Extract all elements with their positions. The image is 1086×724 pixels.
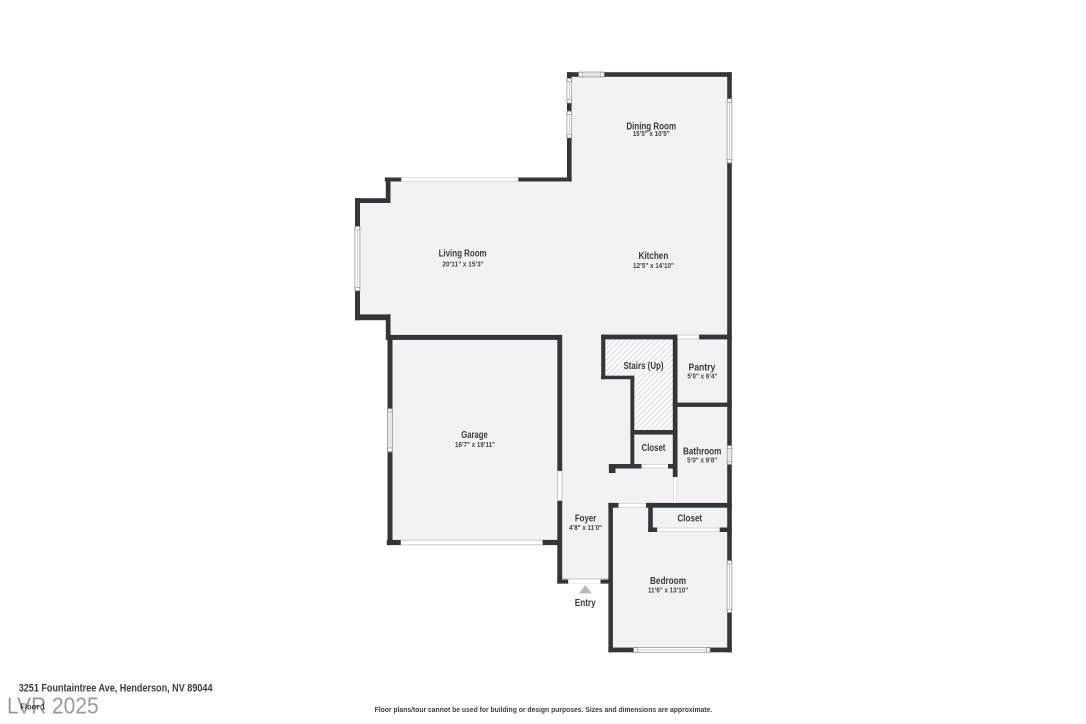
svg-text:5’0" x 6’4": 5’0" x 6’4" — [687, 374, 717, 381]
svg-text:Closet: Closet — [642, 443, 666, 454]
svg-text:Closet: Closet — [678, 513, 703, 524]
svg-text:Kitchen: Kitchen — [639, 251, 669, 262]
svg-text:4’8" x 11’0": 4’8" x 11’0" — [569, 525, 602, 532]
svg-text:Floor plans/tour cannot be use: Floor plans/tour cannot be used for buil… — [375, 707, 713, 714]
svg-text:Pantry: Pantry — [688, 362, 715, 373]
svg-text:5’0" x 9’8": 5’0" x 9’8" — [687, 457, 717, 464]
svg-text:Entry: Entry — [575, 598, 596, 609]
svg-text:Bathroom: Bathroom — [683, 446, 721, 457]
svg-text:16’7" x 19’11": 16’7" x 19’11" — [455, 442, 495, 449]
svg-text:Foyer: Foyer — [575, 514, 597, 525]
svg-text:Garage: Garage — [461, 430, 488, 441]
svg-text:20’11" x 15’3": 20’11" x 15’3" — [442, 262, 483, 269]
svg-text:Living Room: Living Room — [439, 249, 487, 260]
svg-text:11’6" x 13’10": 11’6" x 13’10" — [648, 588, 688, 595]
svg-text:Stairs (Up): Stairs (Up) — [624, 361, 664, 372]
svg-text:Bedroom: Bedroom — [650, 576, 686, 587]
svg-text:12’5" x 14’10": 12’5" x 14’10" — [633, 263, 674, 270]
svg-text:15’5" x 10’5": 15’5" x 10’5" — [633, 131, 670, 138]
svg-text:Floor 1: Floor 1 — [20, 703, 46, 712]
